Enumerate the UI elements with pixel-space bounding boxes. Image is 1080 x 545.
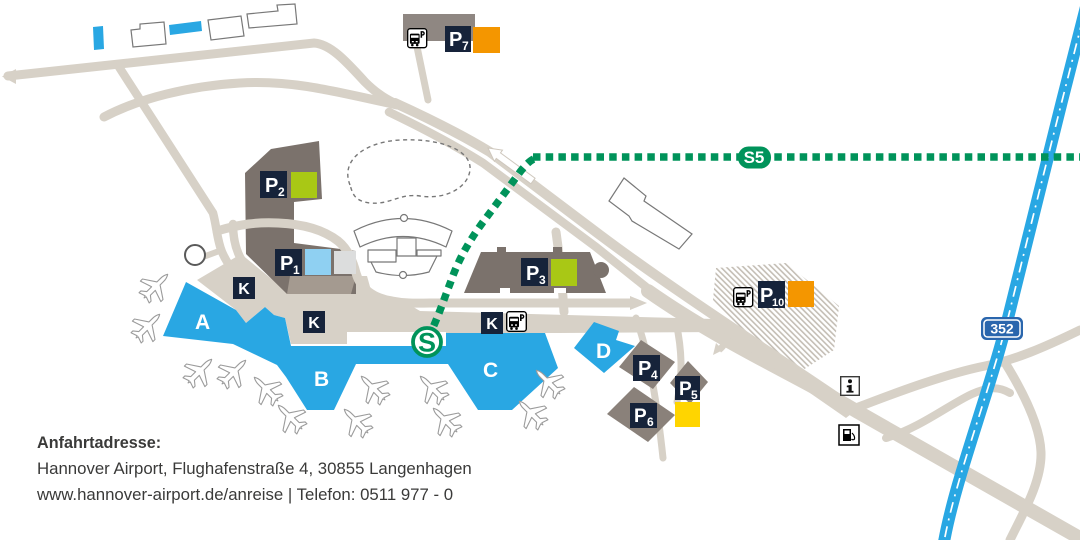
svg-text:P: P — [265, 175, 278, 197]
svg-text:4: 4 — [651, 368, 658, 382]
svg-text:K: K — [308, 315, 320, 332]
svg-text:1: 1 — [293, 263, 300, 277]
svg-text:C: C — [483, 359, 498, 382]
svg-text:S: S — [418, 328, 436, 358]
svg-text:P: P — [449, 29, 462, 51]
svg-text:7: 7 — [462, 39, 469, 53]
svg-text:D: D — [596, 340, 611, 363]
svg-text:2: 2 — [278, 185, 285, 199]
svg-text:P: P — [634, 406, 647, 427]
svg-text:B: B — [314, 368, 329, 391]
svg-text:6: 6 — [647, 415, 654, 429]
svg-text:P: P — [280, 253, 293, 275]
svg-text:P: P — [526, 263, 539, 285]
svg-text:P: P — [638, 358, 651, 380]
svg-text:A: A — [195, 311, 210, 334]
svg-text:352: 352 — [990, 321, 1014, 337]
svg-text:5: 5 — [691, 388, 698, 402]
svg-text:K: K — [238, 281, 250, 298]
svg-text:K: K — [486, 316, 498, 333]
svg-text:3: 3 — [539, 273, 546, 287]
svg-text:10: 10 — [772, 297, 784, 309]
svg-text:S5: S5 — [744, 148, 765, 167]
